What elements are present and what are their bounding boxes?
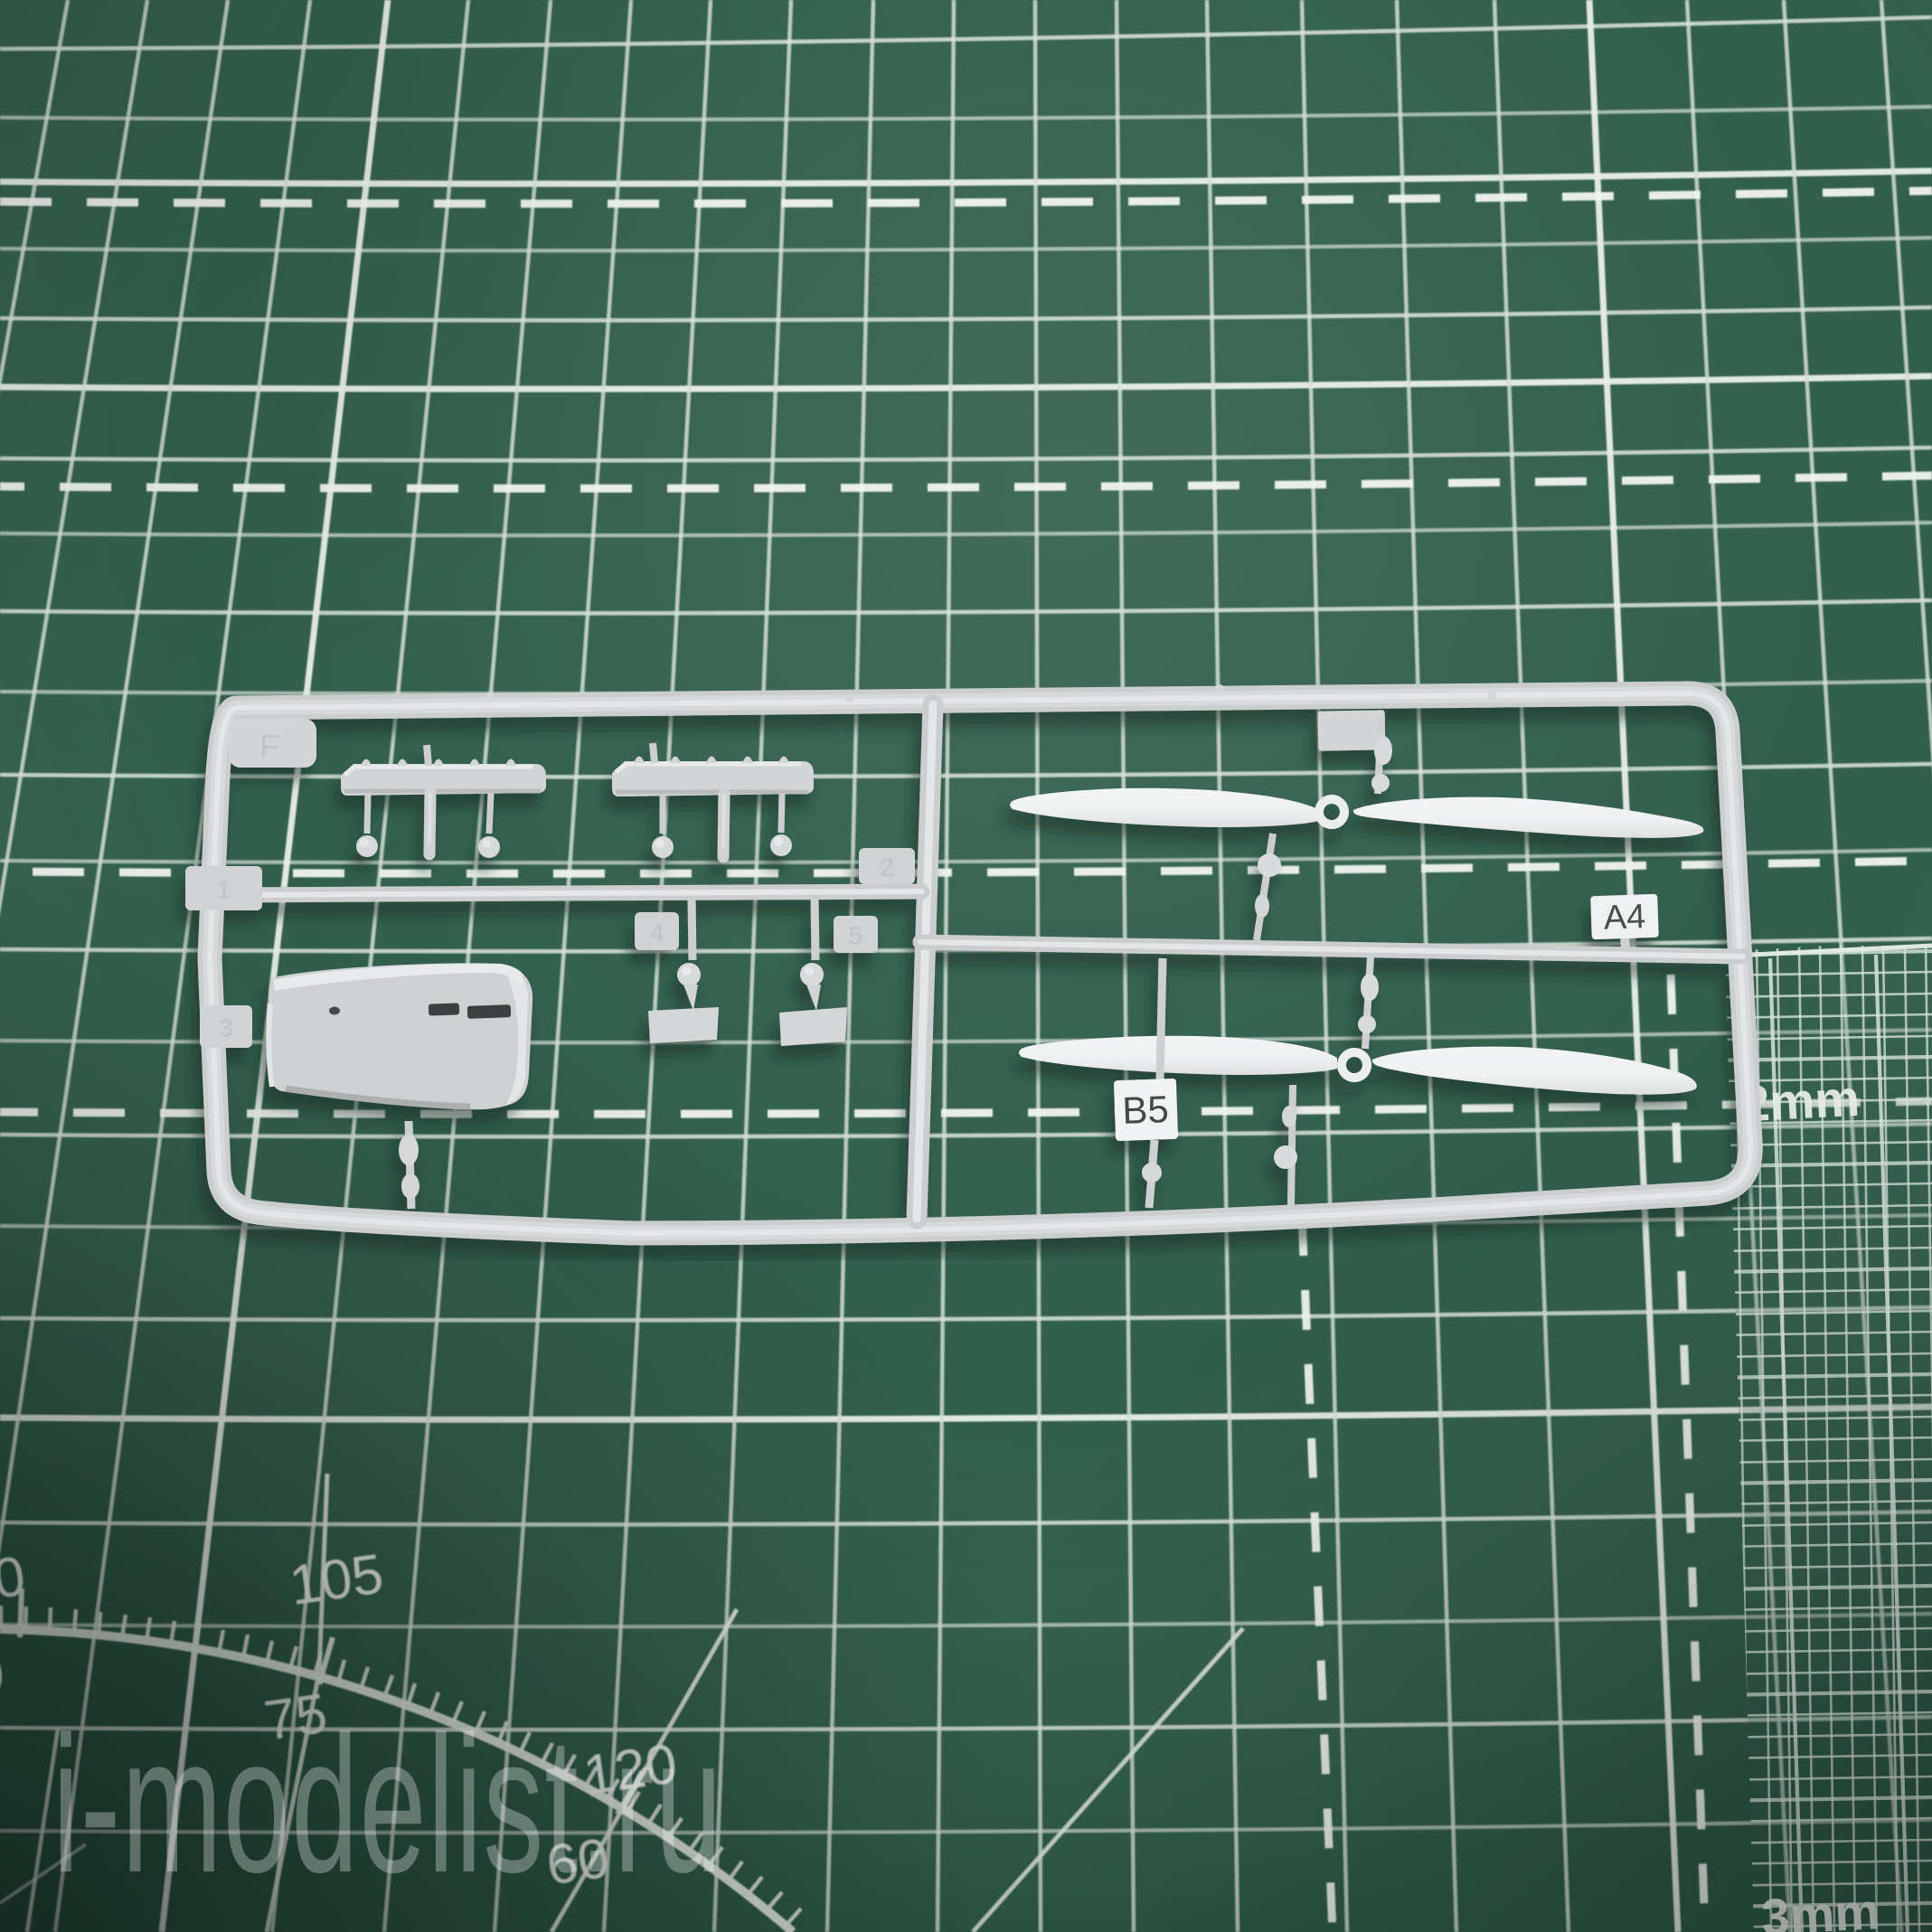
svg-text:3: 3: [219, 1014, 233, 1042]
svg-text:2: 2: [880, 853, 894, 881]
svg-text:i-modelist.ru: i-modelist.ru: [52, 1695, 723, 1912]
svg-text:B5: B5: [1122, 1088, 1170, 1132]
svg-text:4: 4: [650, 919, 664, 947]
svg-text:A4: A4: [1603, 898, 1646, 938]
svg-text:5: 5: [849, 922, 863, 950]
svg-text:1: 1: [217, 876, 231, 904]
svg-text:F: F: [259, 728, 279, 765]
